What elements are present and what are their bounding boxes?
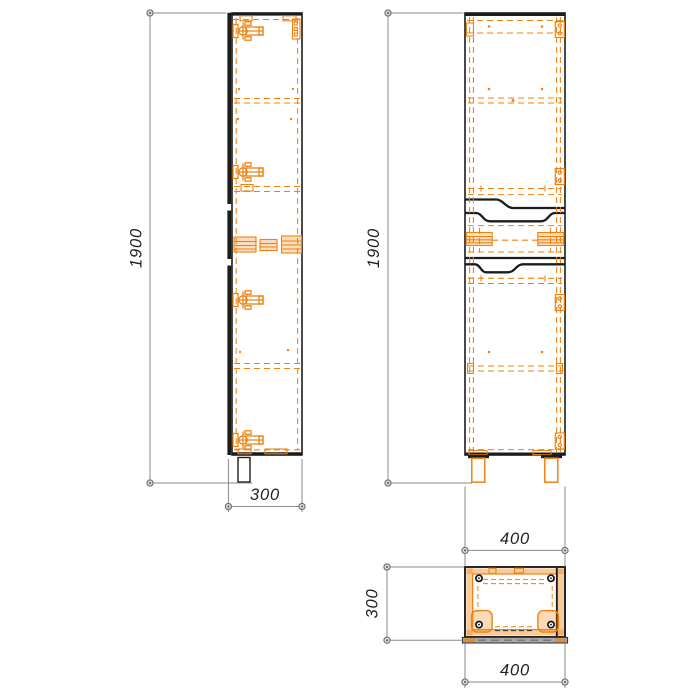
screw-icon: [476, 575, 482, 581]
dim-label-front-height: 1900: [365, 228, 383, 268]
dim-endpoint: [385, 10, 391, 16]
side-view-leg: [238, 458, 250, 483]
dim-endpoint: [225, 503, 231, 509]
dim-top-depth: [387, 567, 464, 640]
dim-label-side-height: 1900: [128, 228, 146, 268]
side-view-carcass: [232, 13, 302, 455]
dim-label-side-depth: 300: [250, 486, 280, 504]
screw-icon: [548, 622, 554, 628]
dim-front-height: [388, 13, 472, 483]
side-view: [228, 13, 302, 482]
dim-endpoint: [147, 480, 153, 486]
dim-endpoint: [462, 547, 468, 553]
dim-endpoint: [462, 679, 468, 685]
dim-endpoint: [147, 10, 153, 16]
corner-brace-icon: [472, 611, 493, 633]
cabinet-drawing-svg: 1900 300 1900 400 300 400: [0, 0, 700, 700]
dim-label-front-width: 400: [500, 530, 530, 548]
corner-brace-icon: [538, 611, 559, 633]
technical-drawing-canvas: 1900 300 1900 400 300 400: [0, 0, 700, 700]
dim-endpoint: [562, 679, 568, 685]
dim-front-width: [465, 487, 565, 567]
dim-endpoint: [299, 503, 305, 509]
dim-endpoint: [562, 547, 568, 553]
dim-label-top-depth: 300: [364, 589, 382, 619]
dim-endpoint: [385, 480, 391, 486]
screw-icon: [548, 575, 554, 581]
dim-label-top-width: 400: [500, 662, 530, 680]
dim-endpoint: [384, 637, 390, 643]
front-view: [465, 13, 565, 482]
top-view: [462, 567, 567, 643]
dim-endpoint: [384, 564, 390, 570]
front-view-legs: [468, 455, 562, 482]
screw-icon: [476, 622, 482, 628]
top-view-door-front: [462, 637, 567, 643]
